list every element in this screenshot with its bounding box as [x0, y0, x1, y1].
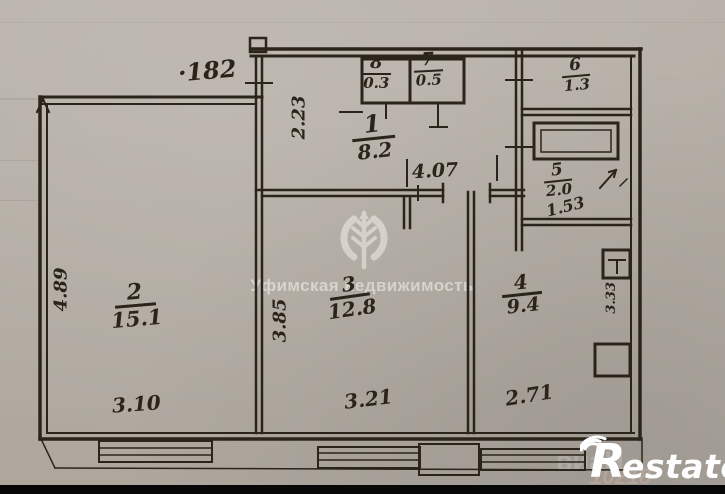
annotation-arrow	[600, 170, 627, 188]
panel-mark	[609, 260, 625, 273]
room-area: 0.3	[363, 76, 389, 91]
room-3-label: 3 12.8	[323, 271, 378, 322]
dimension-room3-height: 3.85	[272, 290, 291, 350]
room-1-label: 1 8.2	[350, 110, 398, 163]
logo-letter: R	[590, 438, 625, 484]
room-2-label: 2 15.1	[108, 279, 163, 331]
room-area: 12.8	[327, 296, 378, 323]
room-number: 8	[362, 54, 391, 75]
room-area: 0.5	[415, 72, 442, 88]
room-6-label: 6 1.3	[560, 56, 591, 94]
logo-text: estate	[622, 450, 725, 483]
wardrobe-box	[534, 123, 618, 159]
dimension-hall-length: 4.07	[412, 161, 459, 183]
room-4-label: 4 9.4	[500, 270, 544, 318]
sill-line	[55, 468, 642, 470]
restate-logo: R estate	[576, 440, 725, 492]
dimension-top-width: ·182	[177, 56, 237, 86]
room-number: 7	[413, 50, 443, 72]
dimension-entry-height: 2.23	[291, 87, 310, 147]
dimension-room2-height: 4.89	[53, 259, 72, 319]
dimension-room4-height: 3.33	[605, 278, 619, 318]
room-area: 15.1	[110, 306, 163, 331]
dimension-room3-width: 3.21	[343, 386, 394, 413]
balcony-door	[419, 444, 479, 475]
room-area: 1.3	[563, 77, 590, 94]
interior-walls	[256, 51, 631, 433]
dimension-room2-width: 3.10	[111, 392, 161, 416]
room-7-label: 7 0.5	[413, 50, 443, 88]
room-8-label: 8 0.3	[362, 54, 391, 91]
window-symbols	[42, 441, 642, 475]
floor-plan-scan: Уфимская недвижимость виаН 10218	[0, 0, 725, 494]
room-5-label: 5 2.0	[542, 161, 573, 200]
room-area: 8.2	[357, 139, 394, 163]
room-area: 9.4	[506, 295, 541, 317]
